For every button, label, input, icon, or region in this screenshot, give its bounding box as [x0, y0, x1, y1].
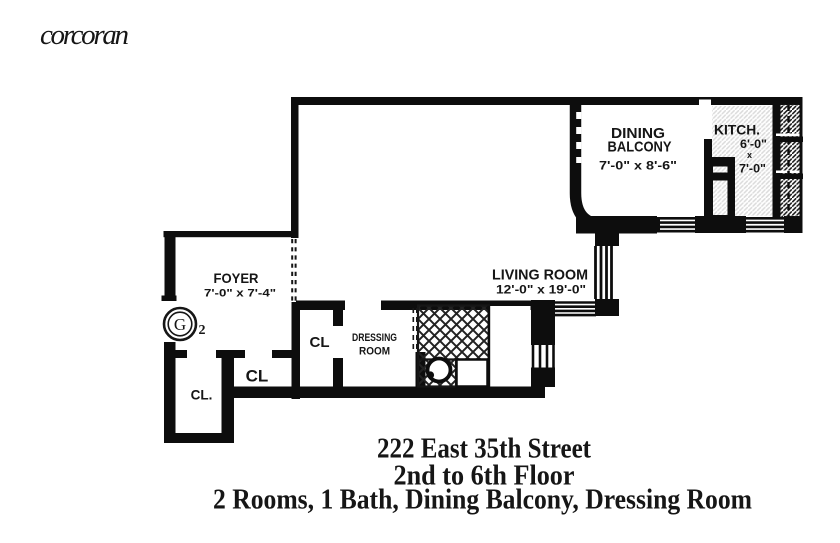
svg-text:KITCH.: KITCH.	[714, 122, 760, 138]
svg-text:6'-0": 6'-0"	[740, 139, 767, 151]
svg-text:7'-0" x 7'-4": 7'-0" x 7'-4"	[204, 288, 276, 300]
svg-text:FOYER: FOYER	[214, 270, 259, 286]
svg-text:2 Rooms, 1 Bath, Dining Balcon: 2 Rooms, 1 Bath, Dining Balcony, Dressin…	[213, 485, 752, 516]
svg-text:DRESSING: DRESSING	[352, 332, 397, 344]
svg-text:12'-0" x 19'-0": 12'-0" x 19'-0"	[496, 283, 586, 297]
svg-text:2: 2	[199, 323, 206, 338]
svg-text:corcoran: corcoran	[40, 19, 129, 51]
svg-text:LIVING ROOM: LIVING ROOM	[492, 267, 588, 284]
svg-text:7'-0" x 8'-6": 7'-0" x 8'-6"	[599, 159, 677, 173]
svg-text:7'-0": 7'-0"	[739, 164, 766, 176]
svg-text:CL: CL	[246, 367, 269, 386]
svg-text:CL.: CL.	[191, 388, 213, 403]
svg-text:BALCONY: BALCONY	[608, 139, 672, 156]
svg-text:G: G	[174, 315, 186, 334]
svg-text:x: x	[747, 150, 752, 160]
svg-text:CL: CL	[310, 334, 330, 351]
svg-text:ROOM: ROOM	[359, 346, 390, 358]
